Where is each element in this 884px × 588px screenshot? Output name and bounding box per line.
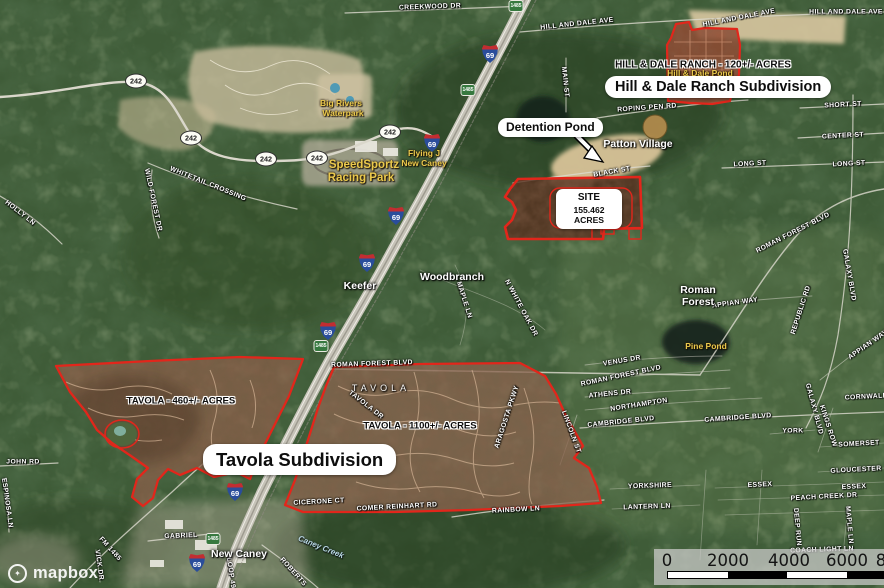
scale-tick: 8 bbox=[876, 551, 884, 570]
scale-tick: 6000 bbox=[826, 551, 868, 570]
scale-tick: 2000 bbox=[707, 551, 749, 570]
scale-tick: 0 bbox=[662, 551, 673, 570]
mapbox-wordmark: mapbox bbox=[33, 564, 98, 583]
mapbox-logo-icon: ✦ bbox=[8, 564, 27, 583]
scale-bar-segments bbox=[667, 571, 884, 579]
satellite-map-graphics bbox=[0, 0, 884, 588]
map-canvas: CREEKWOOD DRHILL AND DALE AVEHILL AND DA… bbox=[0, 0, 884, 588]
scale-bar: 02000400060008 bbox=[654, 549, 884, 585]
scale-tick: 4000 bbox=[768, 551, 810, 570]
mapbox-logo[interactable]: ✦ mapbox bbox=[8, 564, 98, 583]
